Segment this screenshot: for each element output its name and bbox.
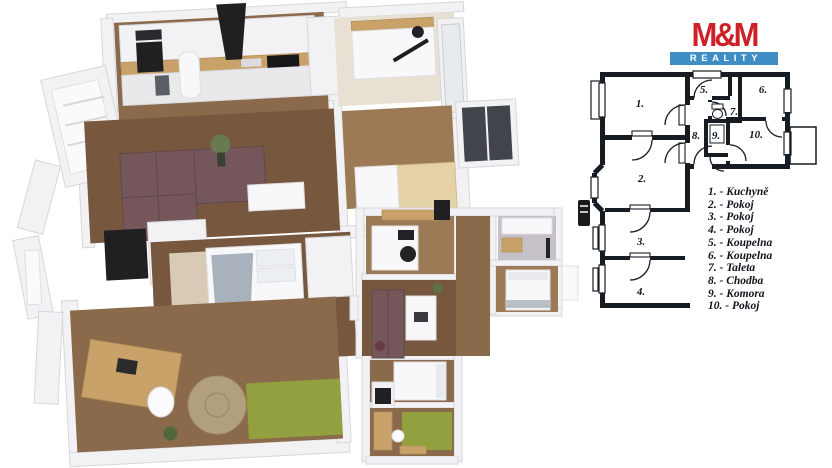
room-label-8: 8. [692,130,700,142]
room-label-4: 4. [636,286,645,298]
office-chair [400,246,416,262]
living-room [84,108,340,243]
small-living [362,280,456,358]
small-hall [456,216,490,356]
small-balcony [562,266,578,300]
green-rug [246,379,343,440]
room-label-7: 7. [730,106,738,118]
legend-item: 2. - Pokoj [708,199,828,212]
room-label-9: 9. [712,130,720,142]
floorplan-collage: M&M REALITY [0,0,832,468]
legend-item: 1. - Kuchyně [708,186,828,199]
legend-item: 8. - Chodba [708,275,828,288]
cooktop [267,54,300,68]
bed-top-right [352,27,436,79]
room-label-10: 10. [749,129,763,141]
black-wardrobe [104,229,149,281]
legend-item: 7. - Taleta [708,262,828,275]
legend-item: 5. - Koupelna [708,237,828,250]
plan3d-small [342,196,592,468]
small-bathroom [498,216,556,260]
toilet-fixture [712,104,723,119]
small-bedroom-right [496,266,558,312]
right-balcony [456,99,519,168]
legend: 1. - Kuchyně 2. - Pokoj 3. - Pokoj 4. - … [708,186,828,313]
room-label-2: 2. [637,173,646,185]
balcony-outline [790,127,816,164]
coffee-table [248,182,305,211]
room-label-5: 5. [700,84,708,96]
bathtub [502,218,552,234]
legend-item: 4. - Pokoj [708,224,828,237]
legend-item: 10. - Pokoj [708,300,828,313]
legend-item: 6. - Koupelna [708,250,828,263]
room-label-1: 1. [636,98,644,110]
legend-item: 9. - Komora [708,288,828,301]
legend-item: 3. - Pokoj [708,211,828,224]
microwave [135,29,161,40]
small-kids-room [370,408,454,456]
vase [179,51,201,98]
room-label-3: 3. [636,236,645,248]
bottom-room [70,297,343,453]
oven [136,41,164,72]
room-label-6: 6. [759,84,767,96]
